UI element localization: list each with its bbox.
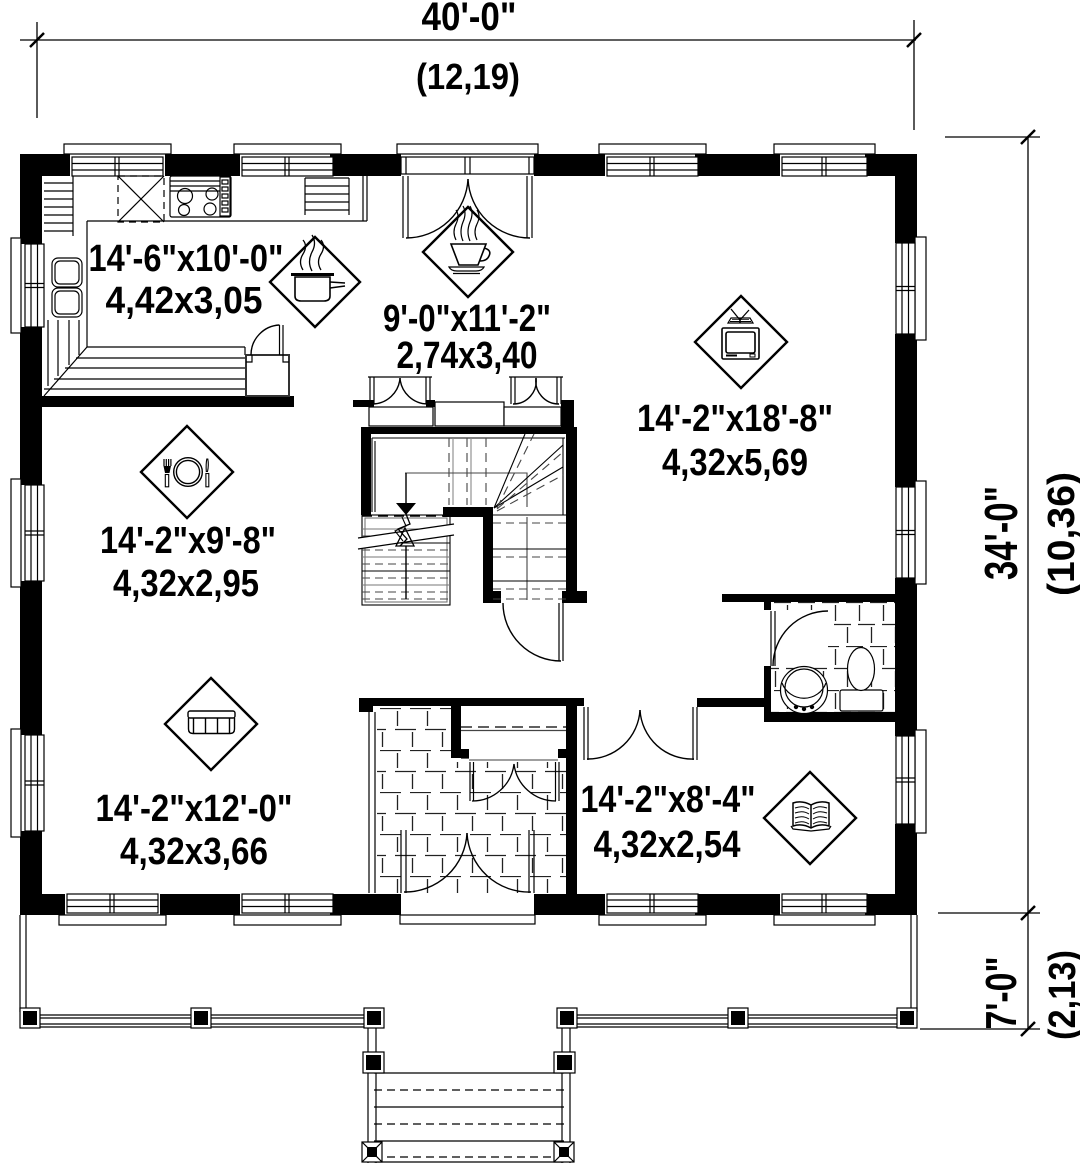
svg-text:14'-2"x12'-0": 14'-2"x12'-0" [96, 788, 293, 830]
svg-text:2,74x3,40: 2,74x3,40 [397, 335, 538, 377]
svg-text:(2,13): (2,13) [1042, 950, 1080, 1040]
svg-text:4,32x3,66: 4,32x3,66 [120, 831, 268, 873]
svg-text:4,32x5,69: 4,32x5,69 [662, 442, 808, 484]
svg-text:14'-2"x18'-8": 14'-2"x18'-8" [637, 398, 833, 440]
svg-text:(10,36): (10,36) [1041, 472, 1080, 596]
svg-text:4,32x2,95: 4,32x2,95 [113, 563, 259, 605]
svg-text:4,42x3,05: 4,42x3,05 [106, 280, 263, 322]
svg-text:4,32x2,54: 4,32x2,54 [594, 824, 741, 866]
svg-text:9'-0"x11'-2": 9'-0"x11'-2" [383, 298, 551, 340]
svg-text:7'-0": 7'-0" [977, 957, 1026, 1030]
svg-text:14'-6"x10'-0": 14'-6"x10'-0" [89, 238, 284, 280]
svg-text:14'-2"x8'-4": 14'-2"x8'-4" [581, 779, 756, 821]
svg-text:40'-0": 40'-0" [422, 0, 517, 39]
svg-text:34'-0": 34'-0" [975, 486, 1027, 580]
svg-text:(12,19): (12,19) [416, 56, 520, 97]
svg-text:14'-2"x9'-8": 14'-2"x9'-8" [100, 520, 276, 562]
